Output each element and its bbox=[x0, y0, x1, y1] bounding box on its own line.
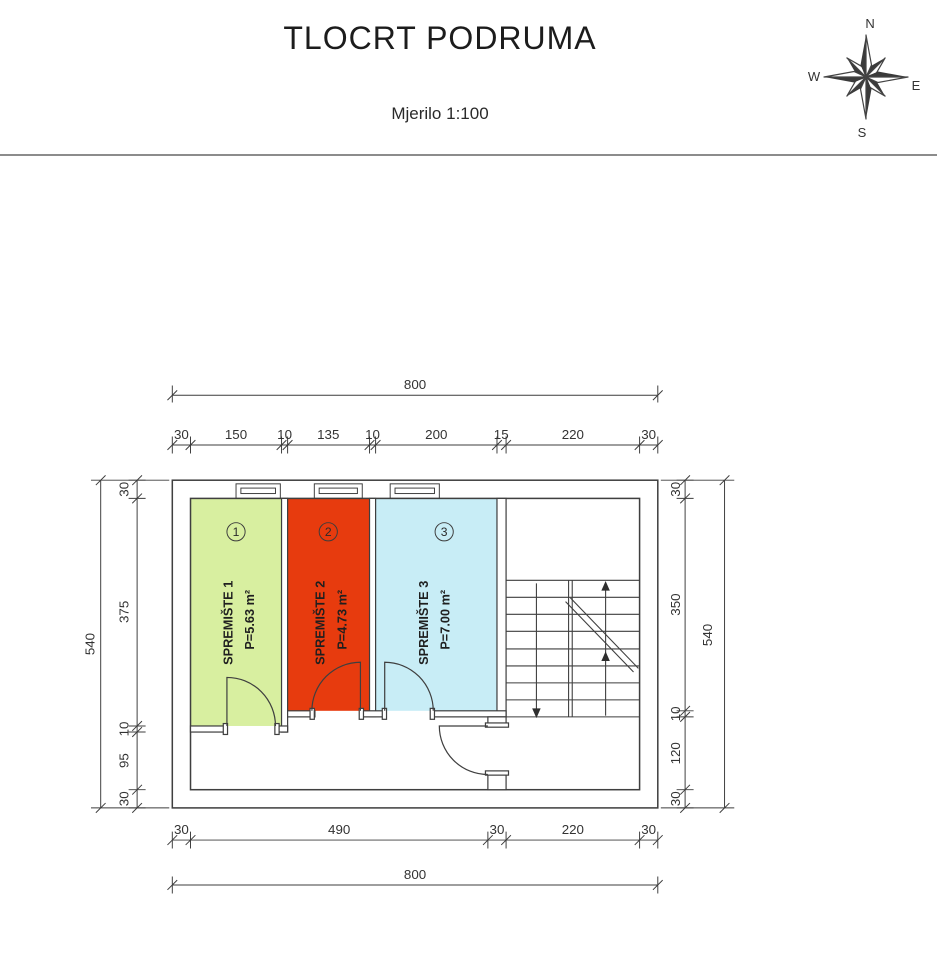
windows bbox=[236, 484, 439, 499]
dim-left-3: 95 bbox=[117, 753, 132, 768]
room-2-number: 2 bbox=[325, 525, 332, 539]
dim-top-5: 200 bbox=[425, 427, 447, 442]
compass-star bbox=[824, 35, 908, 119]
page: { "header": { "title": "TLOCRT PODRUMA",… bbox=[0, 0, 937, 960]
dim-bottom-3: 220 bbox=[562, 822, 584, 837]
room-3-name: SPREMIŠTE 3 bbox=[416, 581, 431, 665]
wall-room1-bottom-a bbox=[191, 726, 227, 732]
dim-left-4: 30 bbox=[117, 791, 132, 806]
dim-right-2: 10 bbox=[668, 706, 683, 721]
dim-top-1: 150 bbox=[225, 427, 247, 442]
floor-plan: 1 SPREMIŠTE 1 P=5.63 m² 2 SPREMIŠTE 2 P=… bbox=[81, 374, 740, 905]
dim-right-3: 120 bbox=[668, 742, 683, 764]
compass-north-label: N bbox=[865, 16, 874, 31]
wall-room3-stairs bbox=[497, 498, 506, 716]
dim-top-0: 30 bbox=[174, 427, 189, 442]
dim-right-4: 30 bbox=[668, 791, 683, 806]
dim-bottom-2: 30 bbox=[490, 822, 505, 837]
wall-room3-bottom bbox=[433, 711, 506, 717]
room-1-area: P=5.63 m² bbox=[242, 590, 257, 650]
window-room1 bbox=[236, 484, 280, 499]
wall-room2-room3 bbox=[370, 498, 376, 716]
wall-corridor-landing-b bbox=[488, 775, 506, 790]
separator-line bbox=[0, 154, 937, 156]
dim-left-total: 540 bbox=[83, 633, 98, 655]
dim-top-2: 10 bbox=[277, 427, 292, 442]
stair-arrow-up-mid-icon bbox=[601, 651, 609, 661]
room-2-area: P=4.73 m² bbox=[334, 590, 349, 650]
compass-west-label: W bbox=[808, 69, 821, 84]
room-3-number: 3 bbox=[441, 525, 448, 539]
scale-label: Mjerilo 1:100 bbox=[0, 104, 880, 124]
dim-left-2: 10 bbox=[117, 722, 132, 737]
dim-right-total: 540 bbox=[700, 624, 715, 646]
room-2-name: SPREMIŠTE 2 bbox=[313, 581, 328, 665]
door-corridor bbox=[439, 726, 488, 775]
dim-top-4: 10 bbox=[365, 427, 380, 442]
compass-rose-icon: N E S W bbox=[800, 8, 932, 146]
window-room2 bbox=[314, 484, 362, 499]
dim-bottom-0: 30 bbox=[174, 822, 189, 837]
dim-top-total: 800 bbox=[404, 377, 426, 392]
room-1-number: 1 bbox=[233, 525, 240, 539]
dim-top-8: 30 bbox=[641, 427, 656, 442]
stair-arrow-up-icon bbox=[601, 581, 609, 591]
staircase bbox=[506, 580, 640, 718]
dim-right-1: 350 bbox=[668, 593, 683, 615]
dim-top-3: 135 bbox=[317, 427, 339, 442]
dim-bottom-1: 490 bbox=[328, 822, 350, 837]
dim-right-0: 30 bbox=[668, 482, 683, 497]
room-3-area: P=7.00 m² bbox=[438, 590, 453, 650]
wall-room1-room2 bbox=[282, 498, 288, 732]
window-room3 bbox=[390, 484, 439, 499]
room-1-name: SPREMIŠTE 1 bbox=[220, 581, 235, 665]
dim-left-1: 375 bbox=[117, 601, 132, 623]
dim-bottom-total: 800 bbox=[404, 867, 426, 882]
compass-south-label: S bbox=[858, 125, 867, 140]
dim-left-0: 30 bbox=[117, 482, 132, 497]
compass-east-label: E bbox=[912, 78, 921, 93]
page-title: TLOCRT PODRUMA bbox=[0, 20, 880, 57]
dim-top-7: 220 bbox=[562, 427, 584, 442]
dim-top-6: 15 bbox=[494, 427, 509, 442]
dim-bottom-4: 30 bbox=[641, 822, 656, 837]
room-3-fill bbox=[376, 498, 497, 710]
wall-room23-bottom bbox=[360, 711, 384, 717]
